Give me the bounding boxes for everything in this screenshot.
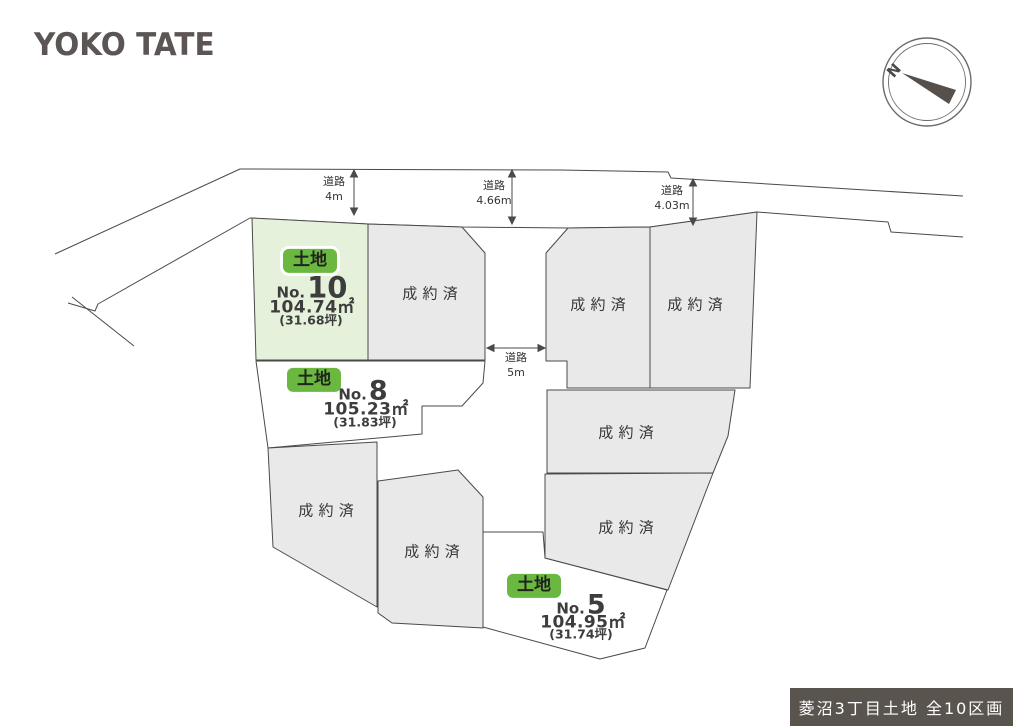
road-label-4m: 道路 4m [323,175,345,205]
sold-lot-6-shape [268,442,377,607]
road-width: 4.66m [476,194,511,209]
lot-no5-badge: 土地 [504,571,564,601]
sold-lot-1-label: 成約済 [397,283,463,304]
north-needle-icon [902,73,956,104]
left-road-edge-line [68,218,250,311]
road-label-4-66m: 道路 4.66m [476,179,511,209]
road-width: 4m [323,190,345,205]
left-road-lower-line [72,297,134,346]
road-label-4-03m: 道路 4.03m [654,184,689,214]
compass: N [877,32,977,132]
sold-lot-2-label: 成約済 [565,294,631,315]
road-width: 5m [505,366,527,381]
road-name: 道路 [654,184,689,199]
sold-lot-5-label: 成約済 [593,517,659,538]
lot-no5-tsubo: (31.74坪) [549,624,612,643]
lot-no8-tsubo: (31.83坪) [333,412,396,431]
lot-no8-badge: 土地 [284,365,344,395]
road-name: 道路 [476,179,511,194]
company-logo: YOKO TATE [34,27,215,63]
road-name: 道路 [505,351,527,366]
road-name: 道路 [323,175,345,190]
site-plan-page: N YOKO TATE 道路 4m 道路 4.66m 道路 4.03m 道路 5… [0,0,1030,728]
sold-lot-6-label: 成約済 [293,500,359,521]
compass-north-label: N [883,60,905,81]
sold-lot-7-label: 成約済 [399,541,465,562]
plan-title-box: 菱沼3丁目土地 全10区画 [790,688,1013,726]
road-label-5m: 道路 5m [505,351,527,381]
plan-title: 菱沼3丁目土地 全10区画 [799,695,1005,719]
lot-no10-tsubo: (31.68坪) [279,310,342,329]
sold-lot-4-label: 成約済 [593,422,659,443]
road-width: 4.03m [654,199,689,214]
sold-lot-3-label: 成約済 [662,294,728,315]
